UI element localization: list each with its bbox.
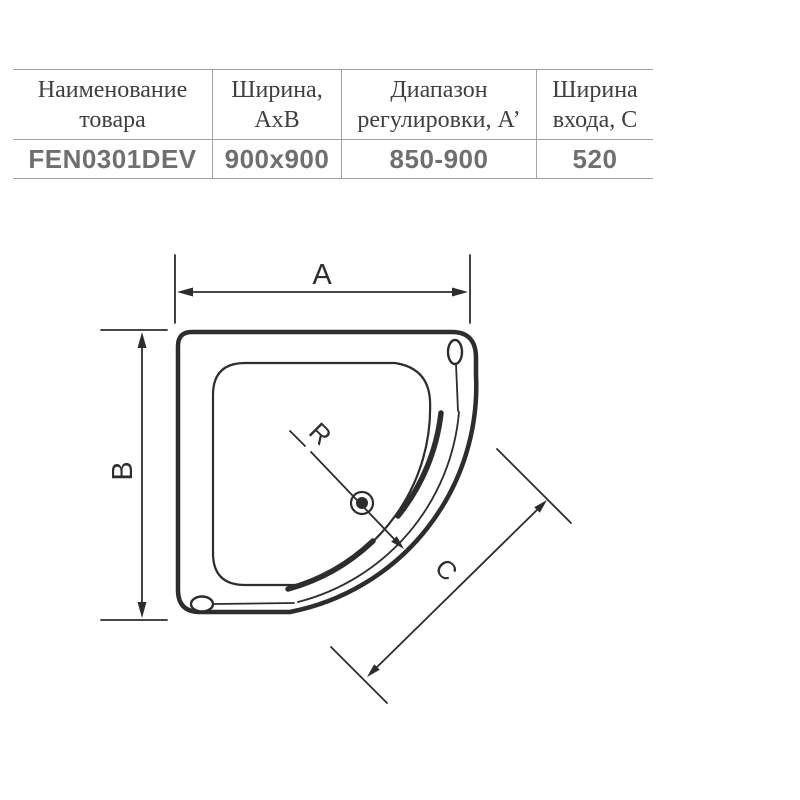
arrow-b-top — [138, 332, 147, 348]
arrow-a-left — [177, 288, 193, 297]
mount-hole-top-right — [448, 340, 462, 364]
dimension-a: A — [175, 255, 470, 323]
product-spec-sheet: Наименование товара Ширина, АхВ Диапазон… — [0, 0, 800, 800]
shower-tray-drawing: A B R C — [0, 0, 800, 800]
label-a: A — [312, 259, 332, 291]
label-b: B — [107, 461, 139, 480]
arrow-b-bottom — [138, 602, 147, 618]
arrow-a-right — [452, 288, 468, 297]
drain-dot — [356, 497, 368, 509]
mount-hole-bottom-left — [191, 597, 213, 612]
dimension-b: B — [101, 330, 167, 620]
hole-connector-bottom — [214, 603, 294, 604]
ext-tick-c-lower — [331, 647, 387, 703]
label-c: C — [429, 552, 463, 586]
